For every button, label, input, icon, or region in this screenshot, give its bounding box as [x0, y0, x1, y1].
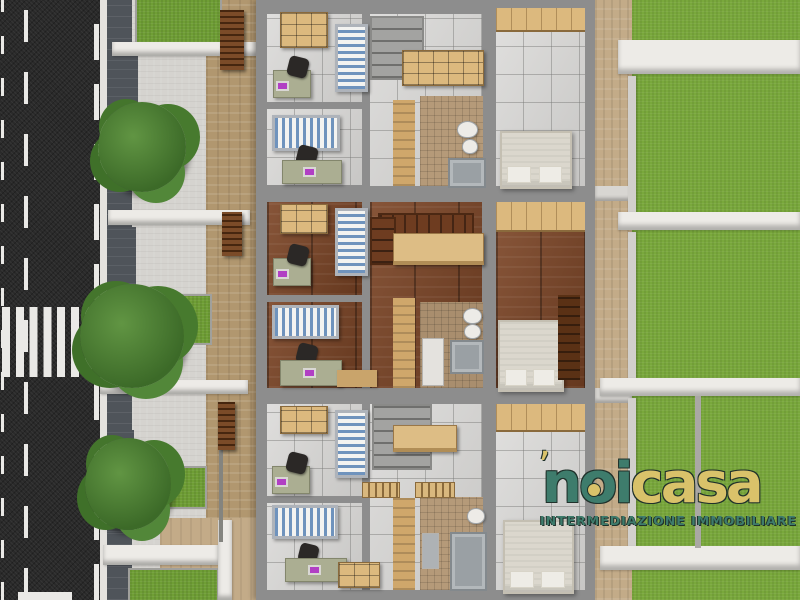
logo-wordmark: noicasa — [542, 456, 761, 512]
single-bed — [335, 24, 368, 92]
storage-cubby — [338, 562, 380, 588]
terrace-edge-wall — [628, 232, 636, 378]
laptop — [308, 565, 321, 575]
garden-wall-1 — [618, 40, 800, 74]
laptop — [276, 81, 289, 91]
unit-top-wardrobe — [496, 8, 585, 32]
logo-tagline: INTERMEDIAZIONE IMMOBILIARE — [540, 513, 797, 528]
desk-chair — [285, 451, 309, 475]
desk — [282, 160, 342, 184]
storage-counter — [393, 233, 484, 265]
laptop — [303, 167, 316, 177]
unit-bottom-closet — [393, 498, 415, 590]
laptop — [276, 269, 289, 279]
desk-chair — [286, 55, 310, 79]
single-bed — [335, 410, 368, 478]
wardrobe-shelf — [280, 204, 328, 234]
road-edge-dashes-left — [1, 0, 4, 600]
unit-top-closet — [393, 100, 415, 186]
shower — [450, 532, 487, 591]
storage-counter — [393, 425, 457, 452]
floorplan-render: ’ noicasa INTERMEDIAZIONE IMMOBILIARE — [0, 0, 800, 600]
single-bed — [272, 505, 338, 539]
desk-chair — [286, 243, 310, 267]
stop-bar — [18, 592, 72, 600]
double-bed — [500, 131, 572, 189]
wood-grate — [362, 482, 400, 498]
agency-logo: ’ noicasa INTERMEDIAZIONE IMMOBILIARE — [540, 456, 800, 536]
bidet — [462, 139, 478, 154]
single-bed — [272, 305, 339, 339]
road — [0, 0, 100, 600]
toilet — [457, 121, 478, 138]
laptop — [303, 368, 316, 378]
bidet — [464, 324, 481, 339]
garden-wall-3 — [600, 378, 800, 396]
unit-middle-closet — [393, 298, 415, 388]
wardrobe-shelf — [280, 12, 328, 48]
zebra-crosswalk — [2, 307, 92, 377]
desk — [273, 70, 311, 98]
road-center-dashed-line — [24, 0, 28, 600]
desk — [280, 360, 342, 386]
toilet — [467, 508, 485, 524]
front-lawn-4 — [130, 570, 217, 600]
bench — [337, 370, 377, 387]
logo-brand-primary: noi — [542, 451, 631, 516]
wood-grate — [415, 482, 455, 498]
logo-brand-secondary: casa — [631, 451, 761, 516]
garden-wall-2 — [618, 212, 800, 230]
tree — [80, 284, 184, 388]
travertine-walkway — [206, 0, 256, 600]
bookshelf — [402, 50, 484, 86]
wardrobe-cabinet — [558, 295, 580, 380]
tree — [85, 438, 171, 530]
logo-o-dot — [588, 484, 600, 496]
bathroom-cabinet — [422, 533, 439, 569]
unit-middle-wardrobe — [496, 202, 585, 232]
toilet — [463, 308, 482, 324]
terrace-party-wall — [595, 186, 632, 201]
shower — [448, 158, 486, 188]
desk — [272, 466, 310, 494]
single-bed — [335, 208, 368, 276]
pergola-louver-bottom — [218, 402, 235, 450]
garden-wall-4 — [600, 546, 800, 570]
pergola-louver-middle — [222, 212, 242, 256]
terrace-edge-wall — [628, 76, 636, 212]
shower — [450, 340, 484, 374]
front-lawn-1 — [137, 0, 220, 42]
unit-bottom-wardrobe — [496, 404, 585, 432]
property-wall-4 — [103, 545, 218, 565]
tree — [98, 102, 186, 192]
bathroom-cabinet — [422, 338, 444, 386]
laptop — [275, 477, 288, 487]
double-bed — [498, 320, 564, 392]
wardrobe-shelf — [280, 406, 328, 434]
pergola-louver-top — [220, 10, 244, 70]
desk — [273, 258, 311, 286]
